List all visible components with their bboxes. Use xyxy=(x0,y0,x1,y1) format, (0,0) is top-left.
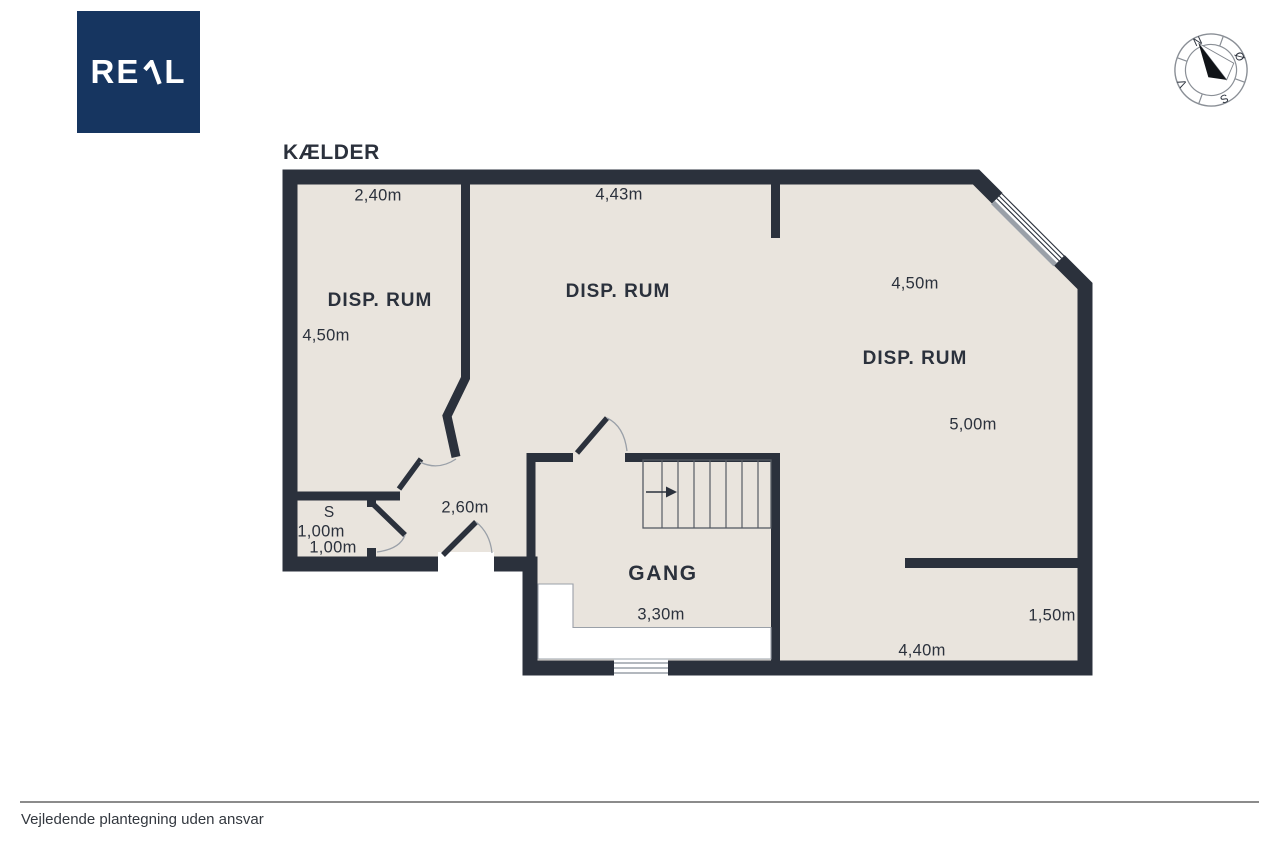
footer-divider xyxy=(20,801,1259,803)
dim-right-recess: 1,50m xyxy=(1028,607,1075,626)
wall-s-room-top xyxy=(290,492,400,501)
wall-right-recess xyxy=(905,558,1078,568)
dim-gang-width: 3,30m xyxy=(637,606,684,625)
dim-s-depth: 1,00m xyxy=(309,539,356,558)
dim-right-depth: 5,00m xyxy=(949,416,996,435)
dim-mid-width: 4,43m xyxy=(595,186,642,205)
door-opening-exterior xyxy=(438,552,494,576)
dim-bottom-width: 4,40m xyxy=(898,642,945,661)
wall-gang-left xyxy=(527,453,536,565)
dim-right-width: 4,50m xyxy=(891,275,938,294)
room-label-s: S xyxy=(324,504,334,522)
wall-stub-top xyxy=(771,184,780,238)
wall-gang-right xyxy=(771,453,780,665)
window-bottom xyxy=(614,657,668,679)
floorplan-drawing xyxy=(0,0,1280,853)
room-label-gang: GANG xyxy=(628,562,697,586)
footer-disclaimer: Vejledende plantegning uden ansvar xyxy=(21,811,264,828)
room-label-disp-rum-mid: DISP. RUM xyxy=(566,281,671,303)
floorplan-page: RE L N Ø S V KÆLDER xyxy=(0,0,1280,853)
room-label-disp-rum-left: DISP. RUM xyxy=(328,290,433,312)
dim-hall-width: 2,60m xyxy=(441,499,488,518)
dim-left-width: 2,40m xyxy=(354,187,401,206)
room-label-disp-rum-right: DISP. RUM xyxy=(863,348,968,370)
dim-left-depth: 4,50m xyxy=(302,327,349,346)
wall-s-door-stub-bottom xyxy=(367,548,376,557)
